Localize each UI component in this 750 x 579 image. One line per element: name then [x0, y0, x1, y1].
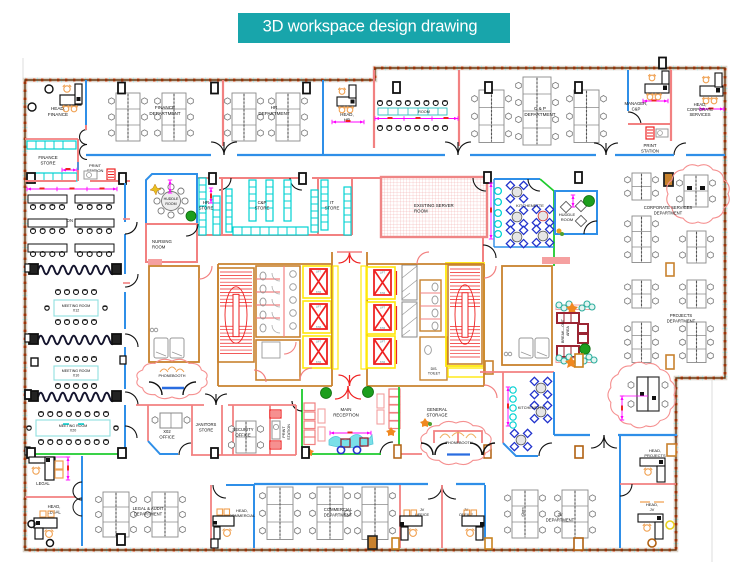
svg-text:KITCHENETTE: KITCHENETTE	[518, 406, 545, 410]
svg-text:MEETING ROOM: MEETING ROOM	[62, 369, 91, 373]
svg-text:HEAD,: HEAD,	[48, 504, 61, 509]
svg-text:ROOM: ROOM	[414, 209, 428, 214]
svg-text:ST.R: ST.R	[380, 292, 385, 295]
svg-text:HR: HR	[271, 105, 278, 110]
svg-text:TOILET: TOILET	[428, 372, 441, 376]
svg-text:X12: X12	[73, 309, 79, 313]
svg-text:ST.R: ST.R	[316, 361, 321, 364]
svg-text:ROOM: ROOM	[418, 110, 430, 114]
svg-text:DEPARTMENT: DEPARTMENT	[258, 111, 289, 116]
svg-text:FINANCE: FINANCE	[155, 105, 175, 110]
svg-text:DIS.: DIS.	[431, 367, 438, 371]
svg-text:PHONEBOOTH: PHONEBOOTH	[445, 441, 472, 445]
svg-text:SERVICES: SERVICES	[689, 112, 710, 117]
svg-text:ROOM: ROOM	[561, 217, 573, 222]
svg-text:MANAGER,: MANAGER,	[625, 101, 648, 106]
svg-text:DEPARTMENT: DEPARTMENT	[134, 511, 163, 516]
svg-text:OFFICE: OFFICE	[235, 432, 251, 437]
svg-text:3D workspace design drawing: 3D workspace design drawing	[263, 18, 478, 36]
svg-text:AREA: AREA	[566, 325, 570, 336]
svg-text:DEPARTMENT: DEPARTMENT	[654, 210, 683, 215]
svg-text:X20: X20	[70, 429, 76, 433]
svg-text:LIFT: LIFT	[316, 270, 321, 273]
svg-text:PROJECTS: PROJECTS	[670, 313, 693, 318]
svg-text:HEAD,: HEAD,	[51, 106, 65, 111]
svg-text:GENERAL: GENERAL	[427, 407, 448, 412]
svg-text:STATION: STATION	[287, 424, 291, 440]
svg-text:STORE: STORE	[199, 206, 214, 211]
svg-text:MEETING ROOM: MEETING ROOM	[62, 304, 91, 308]
svg-text:IT: IT	[330, 200, 334, 205]
svg-text:X10: X10	[73, 374, 79, 378]
svg-text:LIFT: LIFT	[380, 340, 385, 343]
svg-text:C&P: C&P	[258, 200, 267, 205]
svg-text:MAIN: MAIN	[341, 407, 352, 412]
svg-text:LIFT: LIFT	[380, 306, 385, 309]
svg-text:X02: X02	[163, 429, 171, 434]
svg-text:LEGAL & AUDIT: LEGAL & AUDIT	[133, 506, 164, 511]
svg-text:STORE: STORE	[40, 161, 55, 166]
svg-text:STATION: STATION	[641, 149, 659, 154]
svg-text:FINANCE: FINANCE	[48, 112, 68, 117]
svg-text:(Open: (Open	[521, 507, 525, 517]
svg-text:HEAD,: HEAD,	[340, 112, 353, 117]
svg-text:DEPARTMENT: DEPARTMENT	[524, 112, 555, 117]
svg-text:JANITORS: JANITORS	[196, 422, 217, 427]
svg-text:BREAK—OUT: BREAK—OUT	[561, 318, 565, 343]
svg-text:DEPARTMENT: DEPARTMENT	[324, 512, 353, 517]
svg-text:CORPORATE SERVICES: CORPORATE SERVICES	[644, 205, 693, 210]
svg-text:NURSING: NURSING	[152, 239, 172, 244]
svg-text:ST.R: ST.R	[380, 327, 385, 330]
svg-text:DEPARTMENT: DEPARTMENT	[546, 517, 575, 522]
svg-text:STORE: STORE	[325, 206, 340, 211]
svg-text:LIFT: LIFT	[316, 340, 321, 343]
svg-text:STORAGE: STORAGE	[427, 413, 448, 418]
svg-text:COMMERCIAL: COMMERCIAL	[324, 507, 353, 512]
svg-text:SECURITY: SECURITY	[232, 427, 253, 432]
svg-text:ST.R: ST.R	[316, 326, 321, 329]
svg-text:OFFICE: OFFICE	[159, 434, 175, 439]
svg-text:PRINT: PRINT	[282, 426, 286, 438]
svg-text:STORE: STORE	[255, 206, 270, 211]
svg-text:PHONEBOOTH: PHONEBOOTH	[158, 374, 185, 378]
svg-text:C & P: C & P	[534, 106, 546, 111]
svg-text:STORE: STORE	[199, 427, 214, 432]
svg-text:ST.R: ST.R	[380, 361, 385, 364]
svg-text:DEPARTMENT: DEPARTMENT	[149, 111, 180, 116]
svg-text:EXISTING SERVER: EXISTING SERVER	[414, 203, 454, 208]
svg-text:ST.R: ST.R	[316, 291, 321, 294]
svg-text:C&P: C&P	[632, 107, 641, 112]
svg-text:LIFT: LIFT	[380, 271, 385, 274]
svg-text:ROOM: ROOM	[152, 245, 166, 250]
svg-text:HUDDLE: HUDDLE	[164, 197, 179, 201]
svg-text:ROOM: ROOM	[165, 202, 176, 206]
svg-text:DEPARTMENT: DEPARTMENT	[667, 318, 696, 323]
svg-text:RECEPTION: RECEPTION	[333, 413, 359, 418]
svg-text:LEGAL: LEGAL	[36, 481, 50, 486]
svg-text:PRINT: PRINT	[644, 143, 657, 148]
svg-text:KITCHENETTE: KITCHENETTE	[516, 203, 544, 208]
svg-text:LIFT: LIFT	[316, 305, 321, 308]
svg-text:HR: HR	[203, 200, 209, 205]
svg-text:FINANCE: FINANCE	[38, 155, 57, 160]
svg-text:JV: JV	[558, 512, 563, 517]
svg-text:JV: JV	[650, 507, 655, 512]
